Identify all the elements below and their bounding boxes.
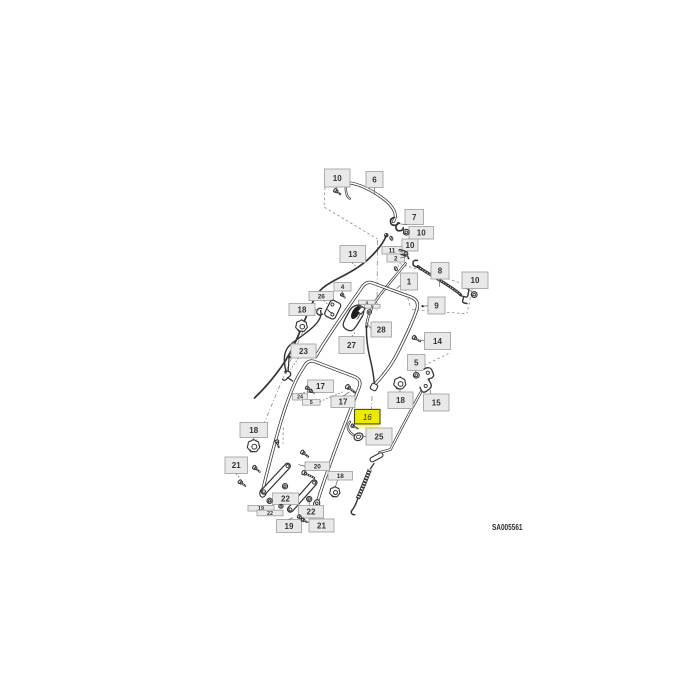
svg-text:26: 26 — [318, 293, 326, 300]
svg-text:22: 22 — [267, 511, 273, 517]
svg-text:23: 23 — [299, 347, 308, 356]
svg-text:21: 21 — [317, 521, 326, 530]
svg-text:5: 5 — [414, 358, 419, 367]
svg-text:14: 14 — [433, 337, 442, 346]
svg-text:25: 25 — [375, 432, 384, 441]
svg-text:4: 4 — [341, 284, 345, 291]
svg-text:22: 22 — [307, 508, 316, 517]
svg-text:10: 10 — [406, 241, 415, 250]
svg-text:1: 1 — [407, 277, 412, 286]
svg-text:10: 10 — [333, 174, 342, 183]
svg-text:18: 18 — [396, 396, 405, 405]
svg-text:7: 7 — [412, 213, 417, 222]
svg-text:9: 9 — [434, 301, 439, 310]
svg-text:15: 15 — [432, 398, 441, 407]
svg-text:16: 16 — [363, 413, 372, 422]
svg-text:6: 6 — [372, 175, 377, 184]
svg-text:13: 13 — [348, 250, 357, 259]
svg-text:11: 11 — [389, 248, 396, 255]
svg-text:17: 17 — [339, 398, 348, 407]
svg-text:10: 10 — [471, 276, 480, 285]
svg-text:18: 18 — [298, 305, 307, 314]
svg-text:20: 20 — [314, 464, 322, 471]
svg-text:5: 5 — [310, 400, 313, 406]
svg-text:18: 18 — [337, 473, 345, 480]
svg-text:27: 27 — [347, 341, 356, 350]
svg-text:18: 18 — [249, 426, 258, 435]
svg-text:10: 10 — [417, 229, 426, 238]
svg-text:17: 17 — [316, 382, 325, 391]
svg-text:8: 8 — [438, 267, 443, 276]
svg-text:SA005561: SA005561 — [492, 522, 523, 532]
svg-text:21: 21 — [232, 461, 241, 470]
svg-text:19: 19 — [285, 522, 294, 531]
svg-text:28: 28 — [377, 325, 386, 334]
svg-text:2: 2 — [394, 255, 398, 262]
svg-text:22: 22 — [281, 495, 290, 504]
